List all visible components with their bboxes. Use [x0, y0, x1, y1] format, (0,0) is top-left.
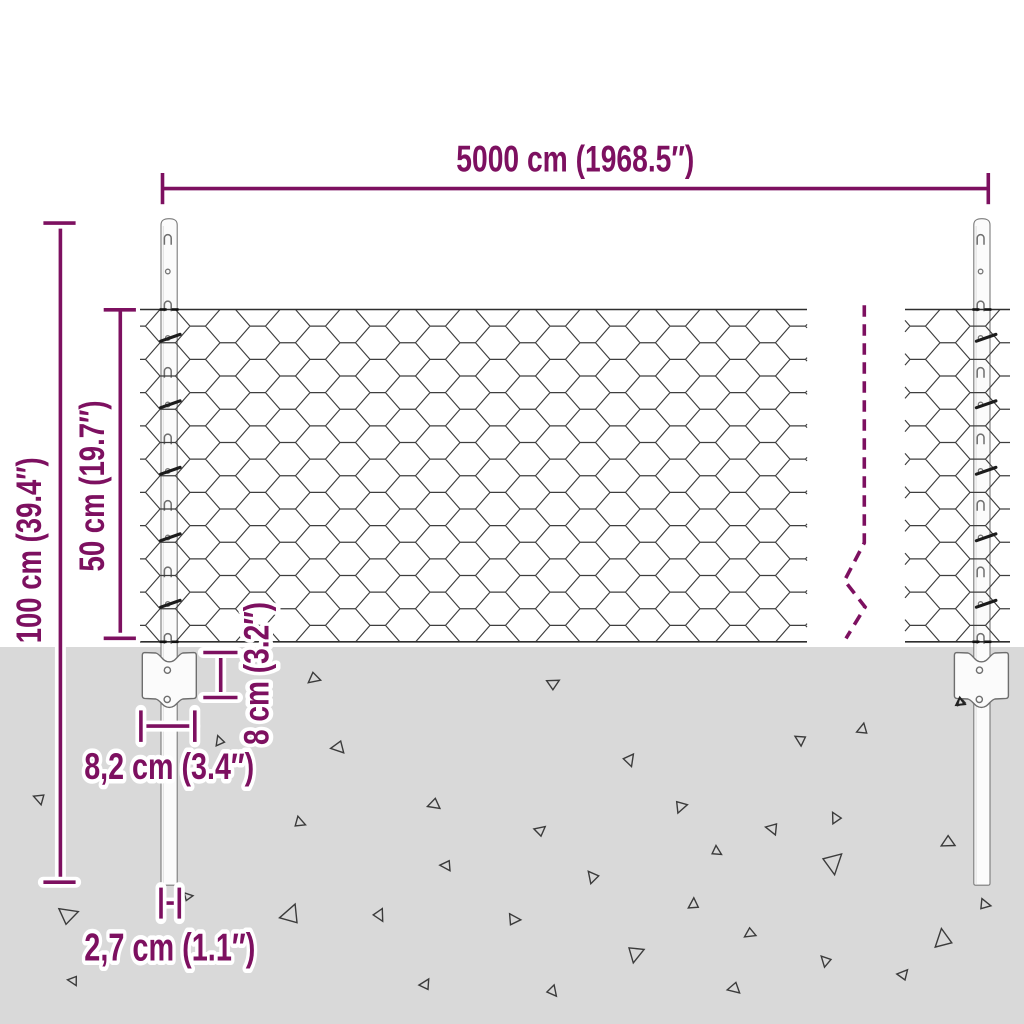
svg-text:50 cm (19.7″): 50 cm (19.7″)	[72, 401, 112, 572]
svg-text:8 cm (3.2″): 8 cm (3.2″)	[237, 602, 277, 745]
svg-text:5000 cm (1968.5″): 5000 cm (1968.5″)	[456, 139, 694, 180]
svg-text:8,2 cm (3.4″): 8,2 cm (3.4″)	[84, 746, 254, 787]
svg-text:2,7 cm (1.1″): 2,7 cm (1.1″)	[84, 927, 255, 970]
svg-text:100 cm (39.4″): 100 cm (39.4″)	[9, 457, 49, 643]
